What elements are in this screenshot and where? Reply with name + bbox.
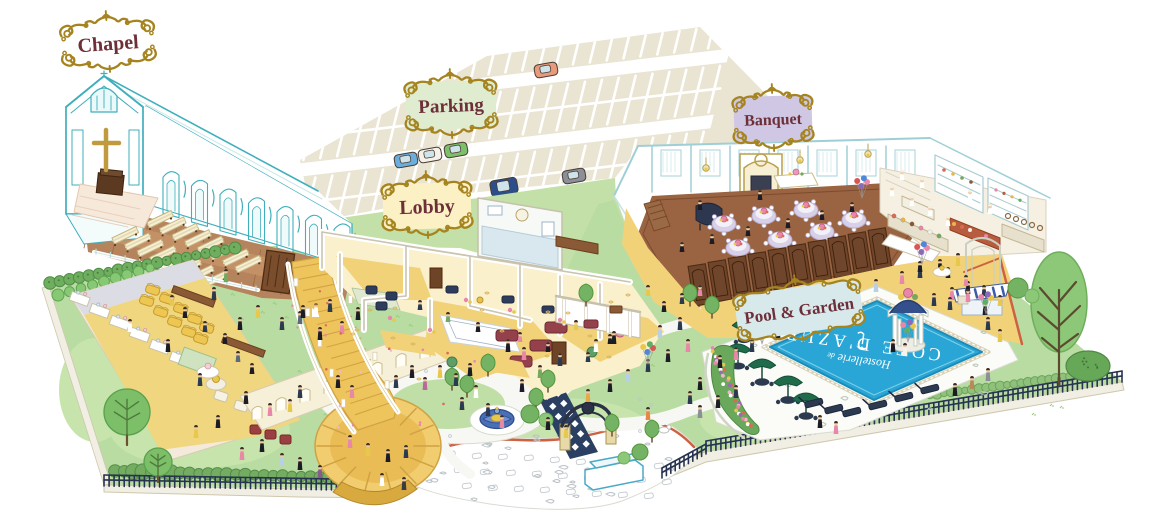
svg-text:Lobby: Lobby (399, 195, 455, 219)
svg-text:Banquet: Banquet (744, 111, 803, 130)
svg-text:Chapel: Chapel (77, 31, 140, 57)
svg-text:Parking: Parking (418, 95, 485, 118)
